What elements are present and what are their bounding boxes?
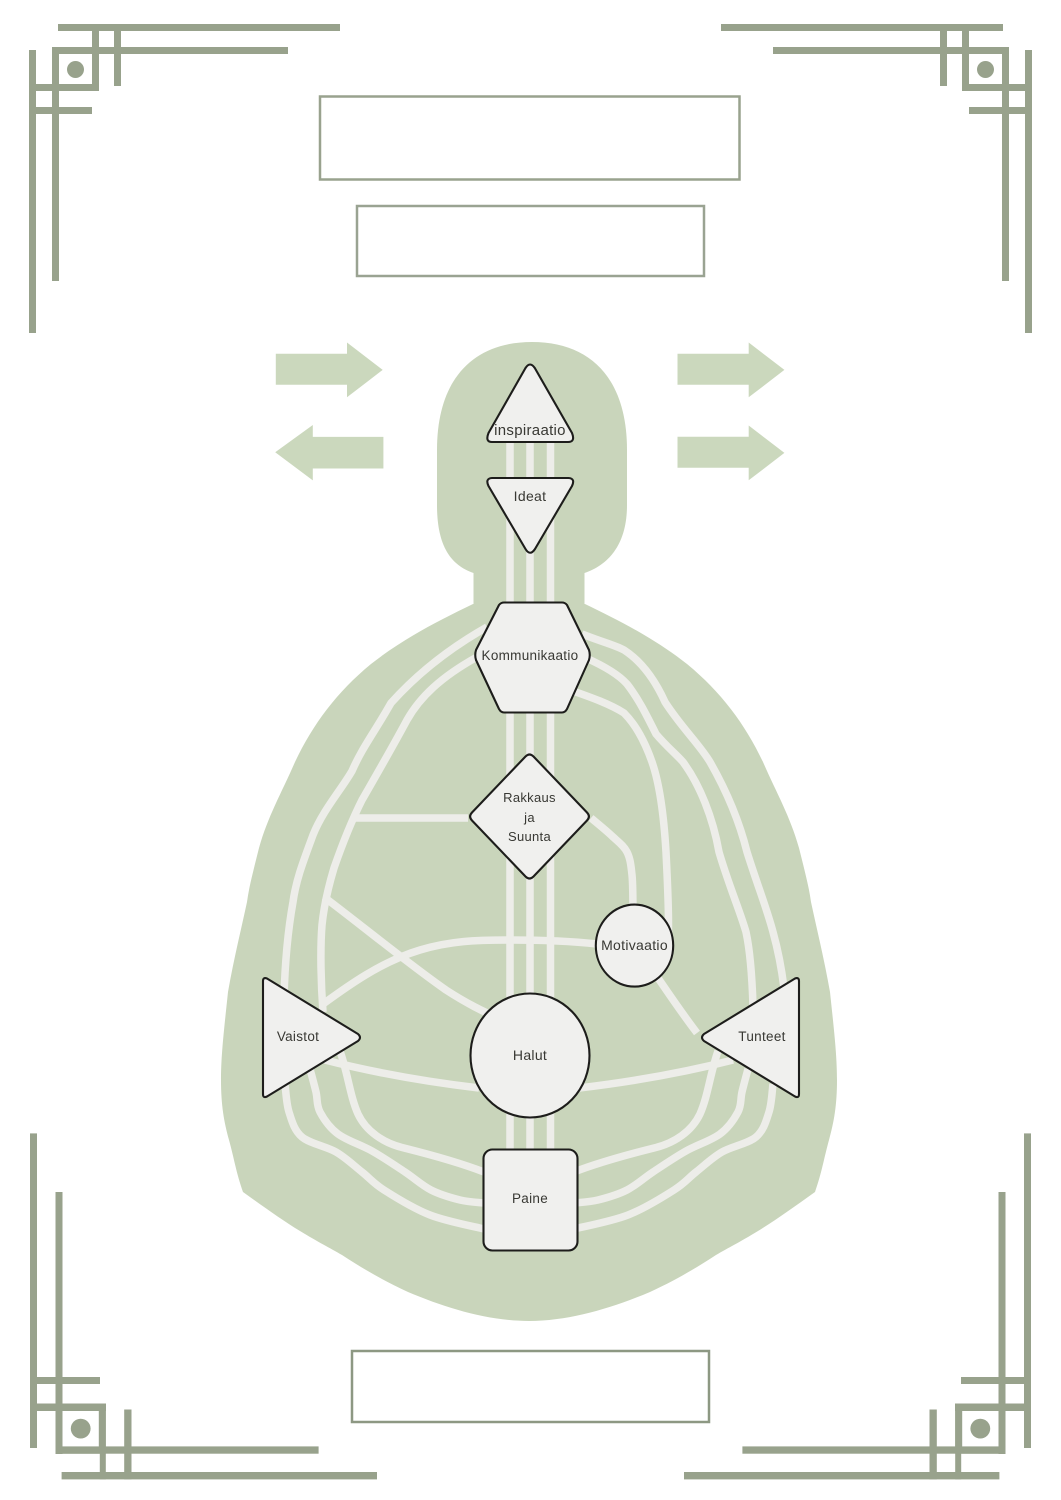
svg-text:Vaistot: Vaistot <box>277 1029 319 1044</box>
svg-text:Halut: Halut <box>513 1047 547 1063</box>
svg-text:Suunta: Suunta <box>508 829 551 844</box>
svg-text:Motivaatio: Motivaatio <box>601 937 668 953</box>
svg-text:Rakkaus: Rakkaus <box>503 790 556 805</box>
svg-text:Kommunikaatio: Kommunikaatio <box>482 648 579 663</box>
svg-text:Paine: Paine <box>512 1191 548 1206</box>
svg-text:Tunteet: Tunteet <box>738 1029 785 1044</box>
svg-text:ja: ja <box>523 810 535 825</box>
svg-text:inspiraatio: inspiraatio <box>494 422 566 439</box>
svg-text:Ideat: Ideat <box>514 488 547 504</box>
